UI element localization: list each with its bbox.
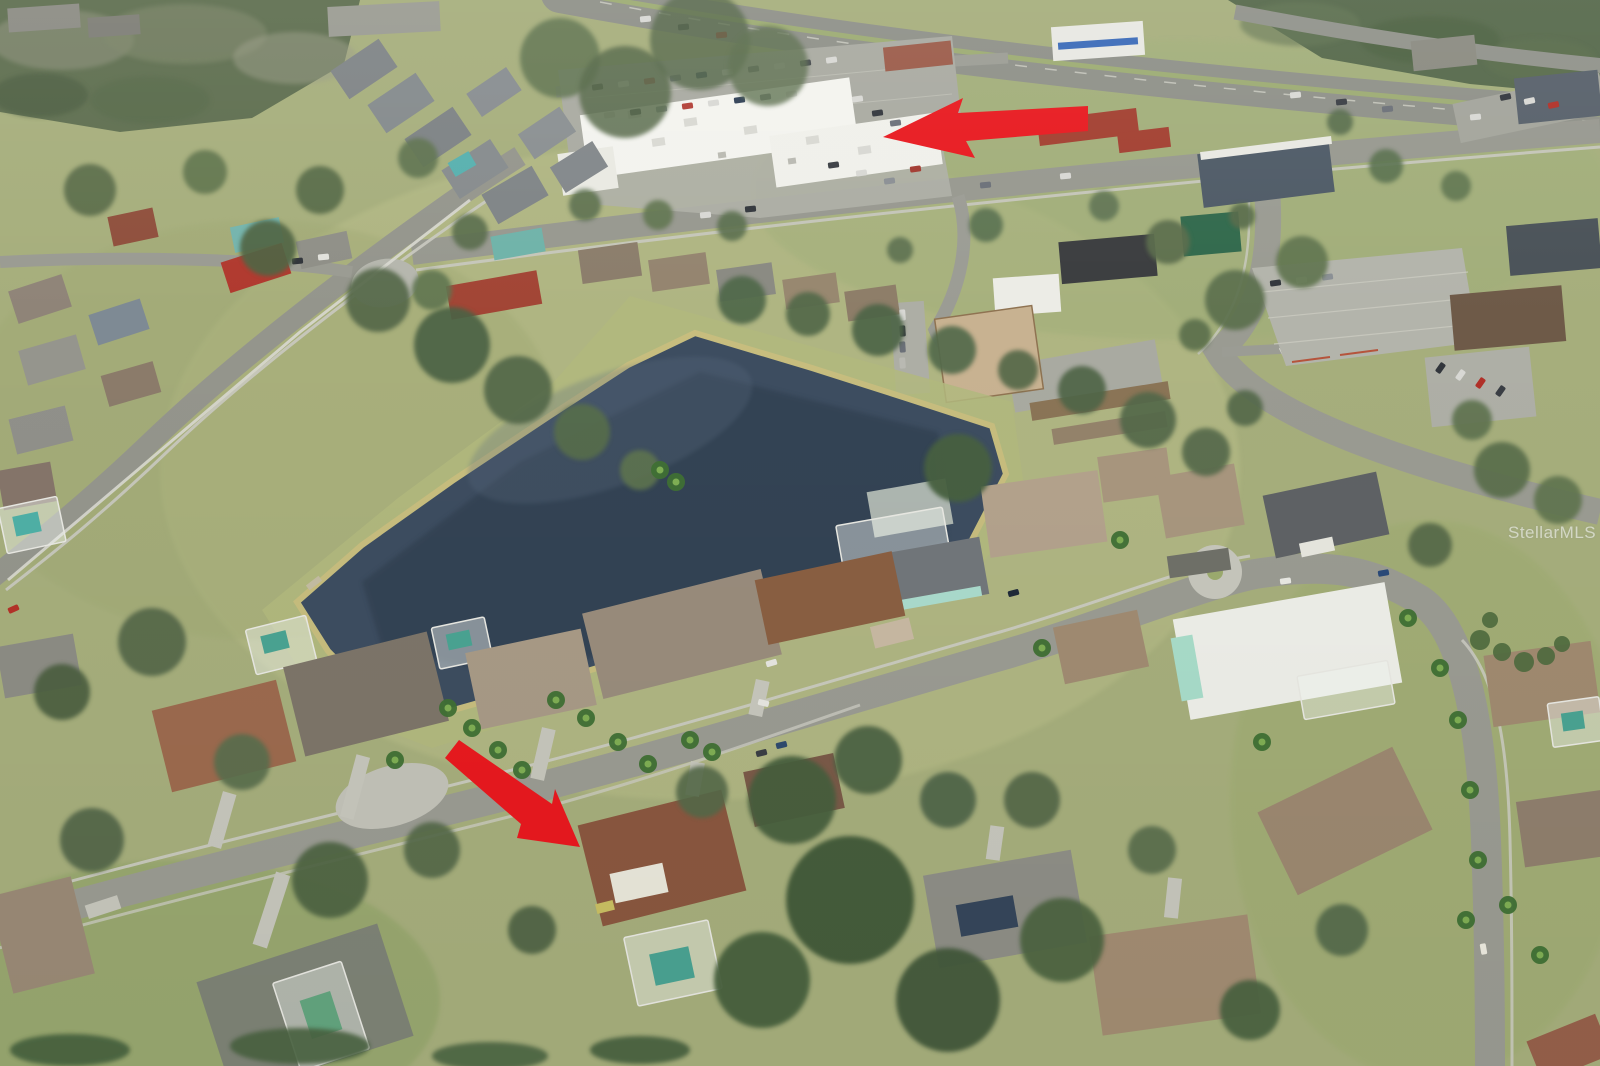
car (1382, 105, 1394, 112)
tree (1229, 203, 1255, 229)
palm-tree (577, 709, 595, 727)
building-apartments (87, 14, 140, 38)
tree (1534, 476, 1582, 524)
rooftop-vent (718, 151, 727, 158)
tree (240, 220, 296, 276)
car (1290, 91, 1302, 98)
car (640, 15, 652, 22)
tree (1182, 428, 1230, 476)
tree (569, 189, 601, 221)
palm-tree (1457, 911, 1475, 929)
tree (924, 434, 992, 502)
palm-tree (667, 473, 685, 491)
building-commercial (1514, 70, 1600, 125)
bush (1514, 652, 1534, 672)
tree (786, 292, 830, 336)
bush (1493, 643, 1511, 661)
palm-tree (651, 461, 669, 479)
tree (1146, 220, 1190, 264)
tree (1408, 523, 1452, 567)
palm-tree (1449, 711, 1467, 729)
tree (676, 766, 728, 818)
tree (1220, 980, 1280, 1040)
tree (346, 268, 410, 332)
tree (1227, 390, 1263, 426)
palm-tree (639, 755, 657, 773)
palm-tree (703, 743, 721, 761)
palm-tree (1399, 609, 1417, 627)
house-roof (1516, 789, 1600, 868)
tree (296, 166, 344, 214)
tree (728, 26, 808, 106)
tree (554, 404, 610, 460)
aerial-photo: StellarMLS (0, 0, 1600, 1066)
tree (1128, 826, 1176, 874)
tree (412, 270, 452, 310)
tree (1452, 400, 1492, 440)
building-commercial (1506, 218, 1600, 276)
building-commercial (1450, 285, 1566, 351)
tree (214, 734, 270, 790)
tree (1020, 898, 1104, 982)
palm-tree (1253, 733, 1271, 751)
palm-tree (1461, 781, 1479, 799)
hedge (10, 1034, 130, 1066)
tree (887, 237, 913, 263)
tree (183, 150, 227, 194)
tree (118, 608, 186, 676)
tree (834, 726, 902, 794)
palm-tree (463, 719, 481, 737)
tree (292, 842, 368, 918)
car (1470, 113, 1482, 120)
bush (1537, 647, 1555, 665)
car (745, 205, 757, 212)
tree (508, 906, 556, 954)
rooftop-vent (788, 157, 797, 164)
scene-canvas (0, 0, 1600, 1066)
tree (717, 211, 747, 241)
tree (1369, 149, 1403, 183)
car (318, 253, 330, 260)
tree (60, 808, 124, 872)
tree (34, 664, 90, 720)
tree (1316, 904, 1368, 956)
palm-tree (609, 733, 627, 751)
parking-lot (327, 1, 440, 37)
tree (928, 326, 976, 374)
tree (64, 164, 116, 216)
palm-tree (513, 761, 531, 779)
building-pavilion (1058, 234, 1157, 284)
tree (714, 932, 810, 1028)
palm-tree (547, 691, 565, 709)
pool (1561, 711, 1585, 732)
tree (969, 208, 1003, 242)
bush (1470, 630, 1490, 650)
car (1060, 172, 1072, 179)
scene-layers (0, 0, 1600, 1066)
tree (718, 276, 766, 324)
car (899, 357, 906, 368)
tree (1089, 191, 1119, 221)
tree (786, 836, 914, 964)
building-apartments (7, 4, 80, 33)
tree (852, 304, 904, 356)
tree (1004, 772, 1060, 828)
tree (1327, 109, 1353, 135)
tree (920, 772, 976, 828)
tree (1205, 270, 1265, 330)
palm-tree (681, 731, 699, 749)
hedge (590, 1036, 690, 1064)
palm-tree (439, 699, 457, 717)
palm-tree (1431, 659, 1449, 677)
palm-tree (1469, 851, 1487, 869)
tree (1474, 442, 1530, 498)
tree (643, 200, 673, 230)
watermark: StellarMLS (1508, 523, 1596, 543)
tree (1120, 392, 1176, 448)
palm-tree (1111, 531, 1129, 549)
tree (1179, 319, 1211, 351)
bush (1554, 636, 1570, 652)
tree (404, 822, 460, 878)
tree (896, 948, 1000, 1052)
palm-tree (489, 741, 507, 759)
bush (1482, 612, 1498, 628)
car (1336, 98, 1348, 105)
car (700, 211, 712, 218)
tree (484, 356, 552, 424)
palm-tree (1531, 946, 1549, 964)
palm-tree (386, 751, 404, 769)
tree (748, 756, 836, 844)
tree (1058, 366, 1106, 414)
forest-canopy (90, 76, 210, 124)
tree (452, 214, 488, 250)
tree (1276, 236, 1328, 288)
tree (1441, 171, 1471, 201)
palm-tree (1033, 639, 1051, 657)
car (980, 181, 992, 188)
tree (398, 138, 438, 178)
hedge (230, 1028, 370, 1064)
tree (998, 350, 1038, 390)
palm-tree (1499, 896, 1517, 914)
tree (414, 307, 490, 383)
